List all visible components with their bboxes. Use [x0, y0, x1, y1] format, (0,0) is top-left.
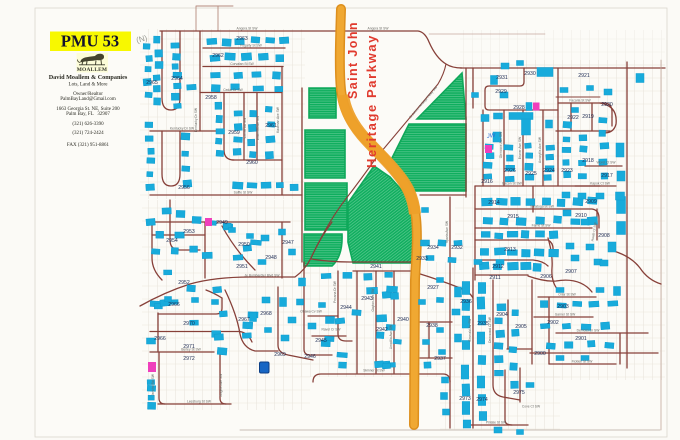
svg-text:Orlar St SW: Orlar St SW: [558, 293, 576, 297]
svg-text:Angora St SW: Angora St SW: [368, 27, 390, 31]
svg-text:2924: 2924: [543, 168, 555, 174]
svg-text:2903: 2903: [557, 304, 569, 310]
svg-text:Wakima Ave SW: Wakima Ave SW: [256, 115, 260, 140]
svg-text:Pintale St SW: Pintale St SW: [486, 421, 507, 425]
svg-text:2920: 2920: [601, 102, 613, 108]
svg-text:2964: 2964: [171, 76, 183, 82]
svg-text:2943: 2943: [361, 296, 373, 302]
svg-text:2910: 2910: [575, 213, 587, 219]
svg-text:2902: 2902: [547, 320, 559, 326]
svg-text:PMU 53: PMU 53: [61, 32, 119, 51]
svg-text:2911: 2911: [489, 275, 500, 281]
svg-text:2925: 2925: [525, 171, 537, 177]
svg-text:2974: 2974: [476, 397, 488, 403]
svg-text:Glencove Ave SW: Glencove Ave SW: [499, 131, 503, 158]
svg-text:2962: 2962: [212, 53, 224, 59]
svg-text:2959: 2959: [228, 130, 240, 136]
svg-text:2970: 2970: [183, 321, 195, 327]
svg-text:Saint John: Saint John: [346, 21, 360, 99]
svg-text:Ottawa Cv SW: Ottawa Cv SW: [300, 310, 323, 314]
svg-text:2975: 2975: [513, 390, 525, 396]
svg-text:2914: 2914: [488, 200, 500, 206]
svg-text:2944: 2944: [340, 305, 352, 311]
svg-text:Amaryllis Ave SW: Amaryllis Ave SW: [538, 136, 542, 163]
svg-text:Leesburg St SW: Leesburg St SW: [187, 400, 212, 404]
svg-text:2954: 2954: [166, 238, 178, 244]
svg-text:Umatilla Ave SW: Umatilla Ave SW: [389, 324, 393, 349]
svg-text:2948: 2948: [265, 255, 277, 261]
svg-text:2951: 2951: [236, 264, 248, 270]
svg-text:Ficklen St SW: Ficklen St SW: [572, 360, 594, 364]
svg-text:2934: 2934: [427, 245, 439, 251]
svg-text:Bruner Ave SW: Bruner Ave SW: [518, 136, 522, 159]
svg-text:2973: 2973: [459, 396, 471, 402]
svg-text:2907: 2907: [565, 269, 577, 275]
svg-text:2949: 2949: [216, 220, 228, 226]
svg-text:Facaria St SW: Facaria St SW: [569, 99, 591, 103]
svg-text:Ravel Cr SW: Ravel Cr SW: [321, 328, 341, 332]
svg-text:2901: 2901: [575, 336, 587, 342]
svg-text:Fogarty St SW: Fogarty St SW: [240, 44, 262, 48]
svg-text:FAX (321) 951-8861: FAX (321) 951-8861: [67, 143, 110, 148]
svg-text:Saffle St SW: Saffle St SW: [234, 191, 254, 195]
svg-text:2942: 2942: [376, 327, 388, 333]
svg-text:2935: 2935: [477, 321, 489, 327]
svg-text:Demoss Dr SW: Demoss Dr SW: [577, 329, 601, 333]
svg-text:2950: 2950: [238, 242, 250, 248]
svg-text:2904: 2904: [496, 312, 508, 318]
svg-text:Comer Av SW: Comer Av SW: [243, 117, 247, 139]
svg-text:2922: 2922: [567, 115, 579, 121]
svg-text:2952: 2952: [178, 280, 190, 286]
svg-text:Skinner St SW: Skinner St SW: [363, 369, 385, 373]
svg-text:2961: 2961: [265, 123, 277, 129]
svg-text:Worel Ct SW: Worel Ct SW: [597, 161, 617, 165]
svg-text:Jericho Rd SW: Jericho Rd SW: [151, 373, 155, 396]
svg-text:2932: 2932: [451, 245, 463, 251]
svg-text:PalmBayLand@Gmail.com: PalmBayLand@Gmail.com: [60, 97, 116, 102]
svg-text:2900: 2900: [534, 351, 546, 357]
svg-text:2940: 2940: [397, 317, 409, 323]
svg-text:2929: 2929: [495, 89, 507, 95]
svg-text:Cedar Dr SW: Cedar Dr SW: [223, 88, 243, 92]
svg-text:2918: 2918: [582, 158, 594, 164]
svg-text:2915: 2915: [507, 214, 519, 220]
svg-text:Farrie St SW: Farrie St SW: [532, 224, 552, 228]
svg-text:2908: 2908: [598, 233, 610, 239]
svg-text:2921: 2921: [578, 73, 590, 79]
svg-text:2930: 2930: [524, 71, 536, 77]
svg-text:2919: 2919: [582, 114, 594, 120]
svg-text:2909: 2909: [585, 199, 597, 205]
svg-text:2946: 2946: [304, 354, 316, 360]
svg-text:2926: 2926: [504, 168, 516, 174]
svg-text:2906: 2906: [540, 274, 552, 280]
svg-text:Saratoga St SW: Saratoga St SW: [530, 205, 555, 209]
svg-text:2917: 2917: [601, 173, 613, 179]
svg-text:2913: 2913: [504, 247, 516, 253]
svg-text:Je Bombardier Blvd SW: Je Bombardier Blvd SW: [245, 274, 281, 278]
svg-text:Emerald Av SW: Emerald Av SW: [468, 318, 472, 342]
svg-text:Garner St SW: Garner St SW: [555, 313, 576, 317]
svg-text:2912: 2912: [492, 264, 504, 270]
svg-text:2966: 2966: [168, 302, 180, 308]
svg-text:Cove Ct SW: Cove Ct SW: [522, 405, 541, 409]
svg-text:2966: 2966: [154, 336, 166, 342]
svg-text:2967: 2967: [238, 317, 250, 323]
svg-text:Angora St SW: Angora St SW: [237, 27, 259, 31]
svg-text:2941: 2941: [370, 264, 382, 270]
svg-text:2971: 2971: [183, 344, 195, 350]
svg-text:Palm Bay, FL 32907: Palm Bay, FL 32907: [66, 112, 110, 117]
svg-text:2968: 2968: [260, 311, 272, 317]
svg-text:Kentucky Dr SW: Kentucky Dr SW: [194, 107, 198, 132]
svg-text:2923: 2923: [561, 168, 573, 174]
svg-text:2956: 2956: [178, 185, 190, 191]
svg-text:(321) 626-3390: (321) 626-3390: [72, 122, 104, 127]
svg-text:(321) 724-2424: (321) 724-2424: [72, 131, 104, 136]
svg-text:2972: 2972: [183, 356, 195, 362]
svg-text:2931: 2931: [496, 75, 508, 81]
svg-text:2963: 2963: [236, 36, 248, 42]
svg-text:2927: 2927: [427, 285, 439, 291]
svg-text:2938: 2938: [426, 323, 438, 329]
svg-text:2960: 2960: [246, 160, 258, 166]
svg-text:2937: 2937: [434, 356, 446, 362]
svg-text:2936: 2936: [460, 299, 472, 305]
svg-text:MOALLEM: MOALLEM: [77, 67, 107, 73]
svg-text:2969: 2969: [274, 352, 286, 358]
svg-text:2947: 2947: [282, 240, 294, 246]
svg-text:Sparta Ave SW: Sparta Ave SW: [445, 220, 449, 243]
svg-text:Lots, Land & More: Lots, Land & More: [69, 83, 109, 88]
svg-text:Bacon St SW: Bacon St SW: [502, 182, 522, 186]
svg-text:2905: 2905: [515, 324, 527, 330]
svg-text:Angele Ave SW: Angele Ave SW: [219, 373, 223, 397]
svg-text:Heritage Parkway: Heritage Parkway: [364, 34, 379, 168]
svg-text:Kapok Ct SW: Kapok Ct SW: [590, 182, 611, 186]
svg-text:2916: 2916: [481, 179, 493, 185]
svg-text:2928: 2928: [513, 105, 525, 111]
svg-text:2958: 2958: [205, 95, 217, 101]
svg-text:2933: 2933: [416, 256, 428, 262]
svg-text:Kaufman Ave SW: Kaufman Ave SW: [276, 106, 280, 133]
svg-text:2945: 2945: [315, 338, 327, 344]
svg-text:Corvalan St SW: Corvalan St SW: [230, 62, 254, 66]
svg-text:2953: 2953: [183, 229, 195, 235]
svg-text:David Moallem & Companies: David Moallem & Companies: [49, 74, 128, 81]
svg-text:Kentucky Dr SW: Kentucky Dr SW: [170, 127, 195, 131]
svg-text:Pecana Dr SW: Pecana Dr SW: [333, 280, 337, 303]
svg-text:2965: 2965: [146, 80, 158, 86]
